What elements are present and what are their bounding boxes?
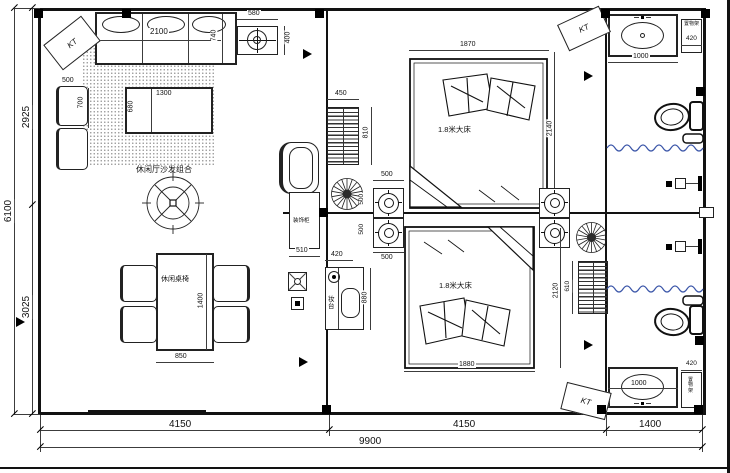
toilet-bottom [653, 296, 705, 346]
bed2-label: 1.8米大床 [438, 282, 473, 290]
dim-line-rack2 [572, 261, 573, 314]
dim-dining-length: 1400 [197, 292, 204, 310]
dim-line-bed2-length [560, 228, 561, 368]
sofa-seat-divider [142, 14, 143, 63]
sofa-seat-divider [188, 14, 189, 63]
washbasin-bottom [621, 374, 664, 400]
faucet-dot [641, 402, 644, 405]
dim-armchair-width: 500 [61, 77, 75, 84]
direction-arrow [16, 317, 25, 327]
dim-line-shelf-top [681, 45, 702, 46]
ac-unit-label: KT [580, 395, 592, 406]
dressing-table-label: 妆台 [327, 297, 338, 311]
faucet-tick [646, 403, 651, 404]
dim-total-width: 9900 [358, 437, 382, 447]
frame-right [727, 0, 730, 473]
column [601, 9, 610, 18]
burner-symbol [373, 188, 404, 218]
ac-unit-label: KT [577, 22, 590, 34]
shower-wave-line [607, 284, 703, 293]
faucet-tick [646, 17, 651, 18]
dim-sofa-depth: 740 [210, 29, 217, 43]
lounge-chair-seat [289, 147, 313, 189]
burner-symbol [539, 188, 570, 218]
dim-sofa-width: 2100 [149, 28, 169, 36]
shower-bar [698, 176, 702, 191]
wall-divider-middle [283, 212, 705, 214]
dressing-table-mirror [341, 288, 360, 318]
dim-line-rack-width [327, 99, 359, 100]
shower-bar [698, 239, 702, 254]
column [694, 405, 703, 414]
dim-line-bed2-width [404, 371, 535, 372]
dim-span-left: 4150 [168, 420, 192, 430]
dim-line-sofa-width [97, 40, 221, 41]
shower-valve [666, 181, 672, 187]
dim-height-top: 2925 [22, 105, 32, 129]
column [701, 9, 710, 18]
shelf-bottom-label: 置物架 [687, 378, 698, 394]
ext-line [14, 414, 40, 415]
shower-box [675, 178, 686, 189]
dining-set-label: 休闲桌椅 [160, 276, 190, 283]
door-threshold-living [88, 410, 206, 415]
burner-symbol [539, 218, 570, 248]
burner-symbol [373, 218, 404, 248]
bed-1 [409, 58, 549, 210]
direction-arrow [303, 49, 312, 59]
shelf-top-label: 置物架 [683, 22, 700, 27]
direction-arrow [584, 71, 593, 81]
dim-bed2-length: 2120 [552, 282, 559, 300]
column [315, 9, 324, 18]
dim-line-dining-length [206, 254, 207, 350]
dining-chair [120, 306, 157, 343]
dim-top-unit-width: 580 [247, 10, 261, 17]
dim-stove-bottom: 500 [380, 254, 394, 261]
column [322, 405, 331, 414]
column [319, 208, 328, 217]
dim-line-basin-bottom [608, 388, 678, 389]
dim-bed1-length: 2140 [546, 120, 553, 138]
faucet-dot [641, 16, 644, 19]
bed-2 [404, 226, 535, 370]
dim-chain-left-total [14, 8, 15, 415]
shower-box [675, 241, 686, 252]
dining-chair [213, 306, 250, 343]
storage-rack-2 [578, 261, 608, 314]
dim-top-unit-depth: 400 [284, 31, 291, 45]
faucet-tick [634, 403, 639, 404]
shower-wave-line [607, 143, 703, 152]
dim-coffee-table-width: 1300 [155, 90, 173, 97]
dim-span-mid: 4150 [452, 420, 476, 430]
dining-chair [213, 265, 250, 302]
dim-line-dresser-length [370, 268, 371, 330]
wall-left [38, 8, 41, 415]
column [122, 9, 131, 18]
dim-height-bottom: 3025 [22, 295, 32, 319]
basin-drain [640, 33, 645, 38]
dim-line-rack-height [371, 107, 372, 165]
dim-rack-width: 450 [334, 90, 348, 97]
frame-bottom [0, 467, 730, 470]
dim-line-dresser-width [325, 260, 353, 261]
dim-shelf-bottom: 420 [685, 361, 698, 368]
direction-arrow [299, 357, 308, 367]
toilet-top [653, 96, 705, 146]
shower-valve [666, 244, 672, 250]
dim-line-shelf-bottom [681, 370, 702, 371]
storage-rack-1 [327, 107, 359, 165]
floor-plan: 2100 740 KT 500 700 1300 680 休闲厅沙发组合 580… [0, 0, 730, 473]
exhaust-fan-icon [575, 221, 608, 254]
column [597, 405, 606, 414]
dim-chain-total [40, 447, 702, 448]
sofa-cushion [102, 16, 140, 33]
dim-chain-left [32, 8, 33, 415]
dim-total-height: 6100 [4, 199, 14, 223]
dim-span-right: 1400 [638, 420, 662, 430]
faucet-tick [634, 17, 639, 18]
dim-basin-top: 1000 [632, 53, 650, 60]
dim-armchair-depth: 700 [77, 96, 84, 110]
dim-bed1-width: 1870 [459, 41, 477, 48]
coffee-table-divider [151, 89, 152, 132]
sofa-arm-line [222, 14, 223, 63]
ac-unit-label: KT [65, 36, 79, 49]
electrical-symbol-circle [294, 278, 301, 285]
dim-line-cabinet [289, 256, 320, 257]
bed1-label: 1.8米大床 [437, 126, 472, 134]
dim-stove-top: 500 [380, 171, 394, 178]
dim-dining-width: 850 [174, 353, 188, 360]
sofa-cushion [192, 16, 226, 33]
dim-line-top-unit [237, 19, 278, 20]
dim-line-stove-top [373, 180, 404, 181]
ext-line [606, 415, 607, 436]
wall-divider-bedroom-bath [605, 8, 607, 414]
dim-shelf-top: 420 [685, 36, 698, 43]
dim-line-bed1-length [554, 52, 555, 210]
dim-dresser-width: 420 [330, 251, 344, 258]
deco-cabinet-label: 装饰柜 [292, 219, 311, 225]
dim-line-basin-top [608, 62, 678, 63]
dim-rack-height: 810 [362, 126, 369, 140]
column [34, 9, 43, 18]
dim-cabinet-width: 510 [295, 247, 309, 254]
dim-coffee-table-depth: 680 [127, 100, 134, 114]
dim-stove-side: 500 [359, 193, 366, 206]
dim-dresser-length: 880 [361, 291, 368, 305]
dim-rack2-height: 610 [565, 280, 572, 293]
ceiling-light-icon [142, 172, 204, 234]
dim-bed2-width: 1880 [458, 361, 476, 368]
ext-line [329, 415, 330, 436]
dim-stove-side: 500 [359, 223, 366, 236]
dining-chair [120, 265, 157, 302]
dim-basin-bottom: 1000 [630, 380, 648, 387]
dim-line-stove-bottom [373, 252, 404, 253]
dim-line-armchair [88, 88, 89, 128]
floor-outlet-dot [295, 301, 300, 306]
window-right-wall [699, 207, 714, 218]
dim-line-bed1-width [409, 50, 549, 51]
dim-line-dining-width [156, 362, 214, 363]
dressing-stool-dot [332, 275, 336, 279]
direction-arrow [584, 340, 593, 350]
floor-drain [696, 87, 705, 96]
armchair-left-2 [56, 128, 88, 170]
top-unit-inner-circle [253, 36, 261, 44]
